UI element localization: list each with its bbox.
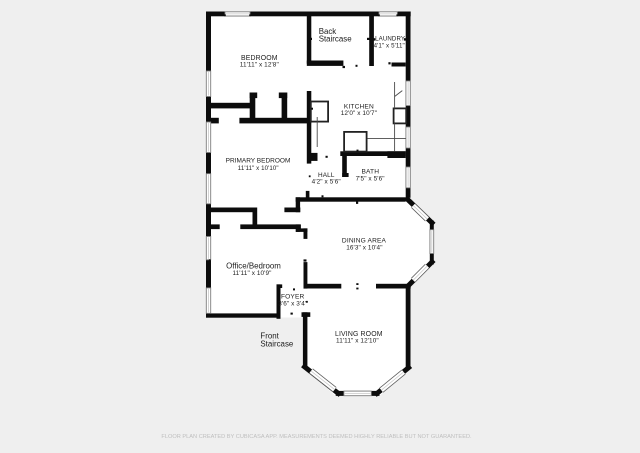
svg-text:PRIMARY BEDROOM: PRIMARY BEDROOM [226,158,291,165]
svg-text:11'11" x 12'10": 11'11" x 12'10" [336,337,379,344]
svg-text:11'11" x 10'9": 11'11" x 10'9" [232,270,271,277]
svg-text:FOYER: FOYER [281,293,305,300]
svg-text:Office/Bedroom: Office/Bedroom [226,261,281,270]
svg-text:4'1" x 5'11": 4'1" x 5'11" [374,42,405,49]
svg-text:LAUNDRY: LAUNDRY [375,35,405,42]
svg-text:DINING AREA: DINING AREA [342,238,387,245]
svg-text:11'11" x 12'8": 11'11" x 12'8" [240,61,279,68]
svg-text:Staircase: Staircase [319,35,353,44]
svg-text:Staircase: Staircase [260,339,294,348]
svg-text:7'5" x 5'6": 7'5" x 5'6" [356,175,385,182]
svg-text:FLOOR PLAN CREATED BY CUBICASA: FLOOR PLAN CREATED BY CUBICASA APP. MEAS… [161,434,472,440]
svg-text:11'11" x 10'10": 11'11" x 10'10" [238,165,279,172]
svg-text:16'3" x 10'4": 16'3" x 10'4" [346,245,382,252]
svg-text:4'2" x 5'6": 4'2" x 5'6" [312,179,341,186]
svg-text:12'0" x 10'7": 12'0" x 10'7" [341,110,377,117]
svg-text:3'6" x 3'4": 3'6" x 3'4" [278,301,307,308]
